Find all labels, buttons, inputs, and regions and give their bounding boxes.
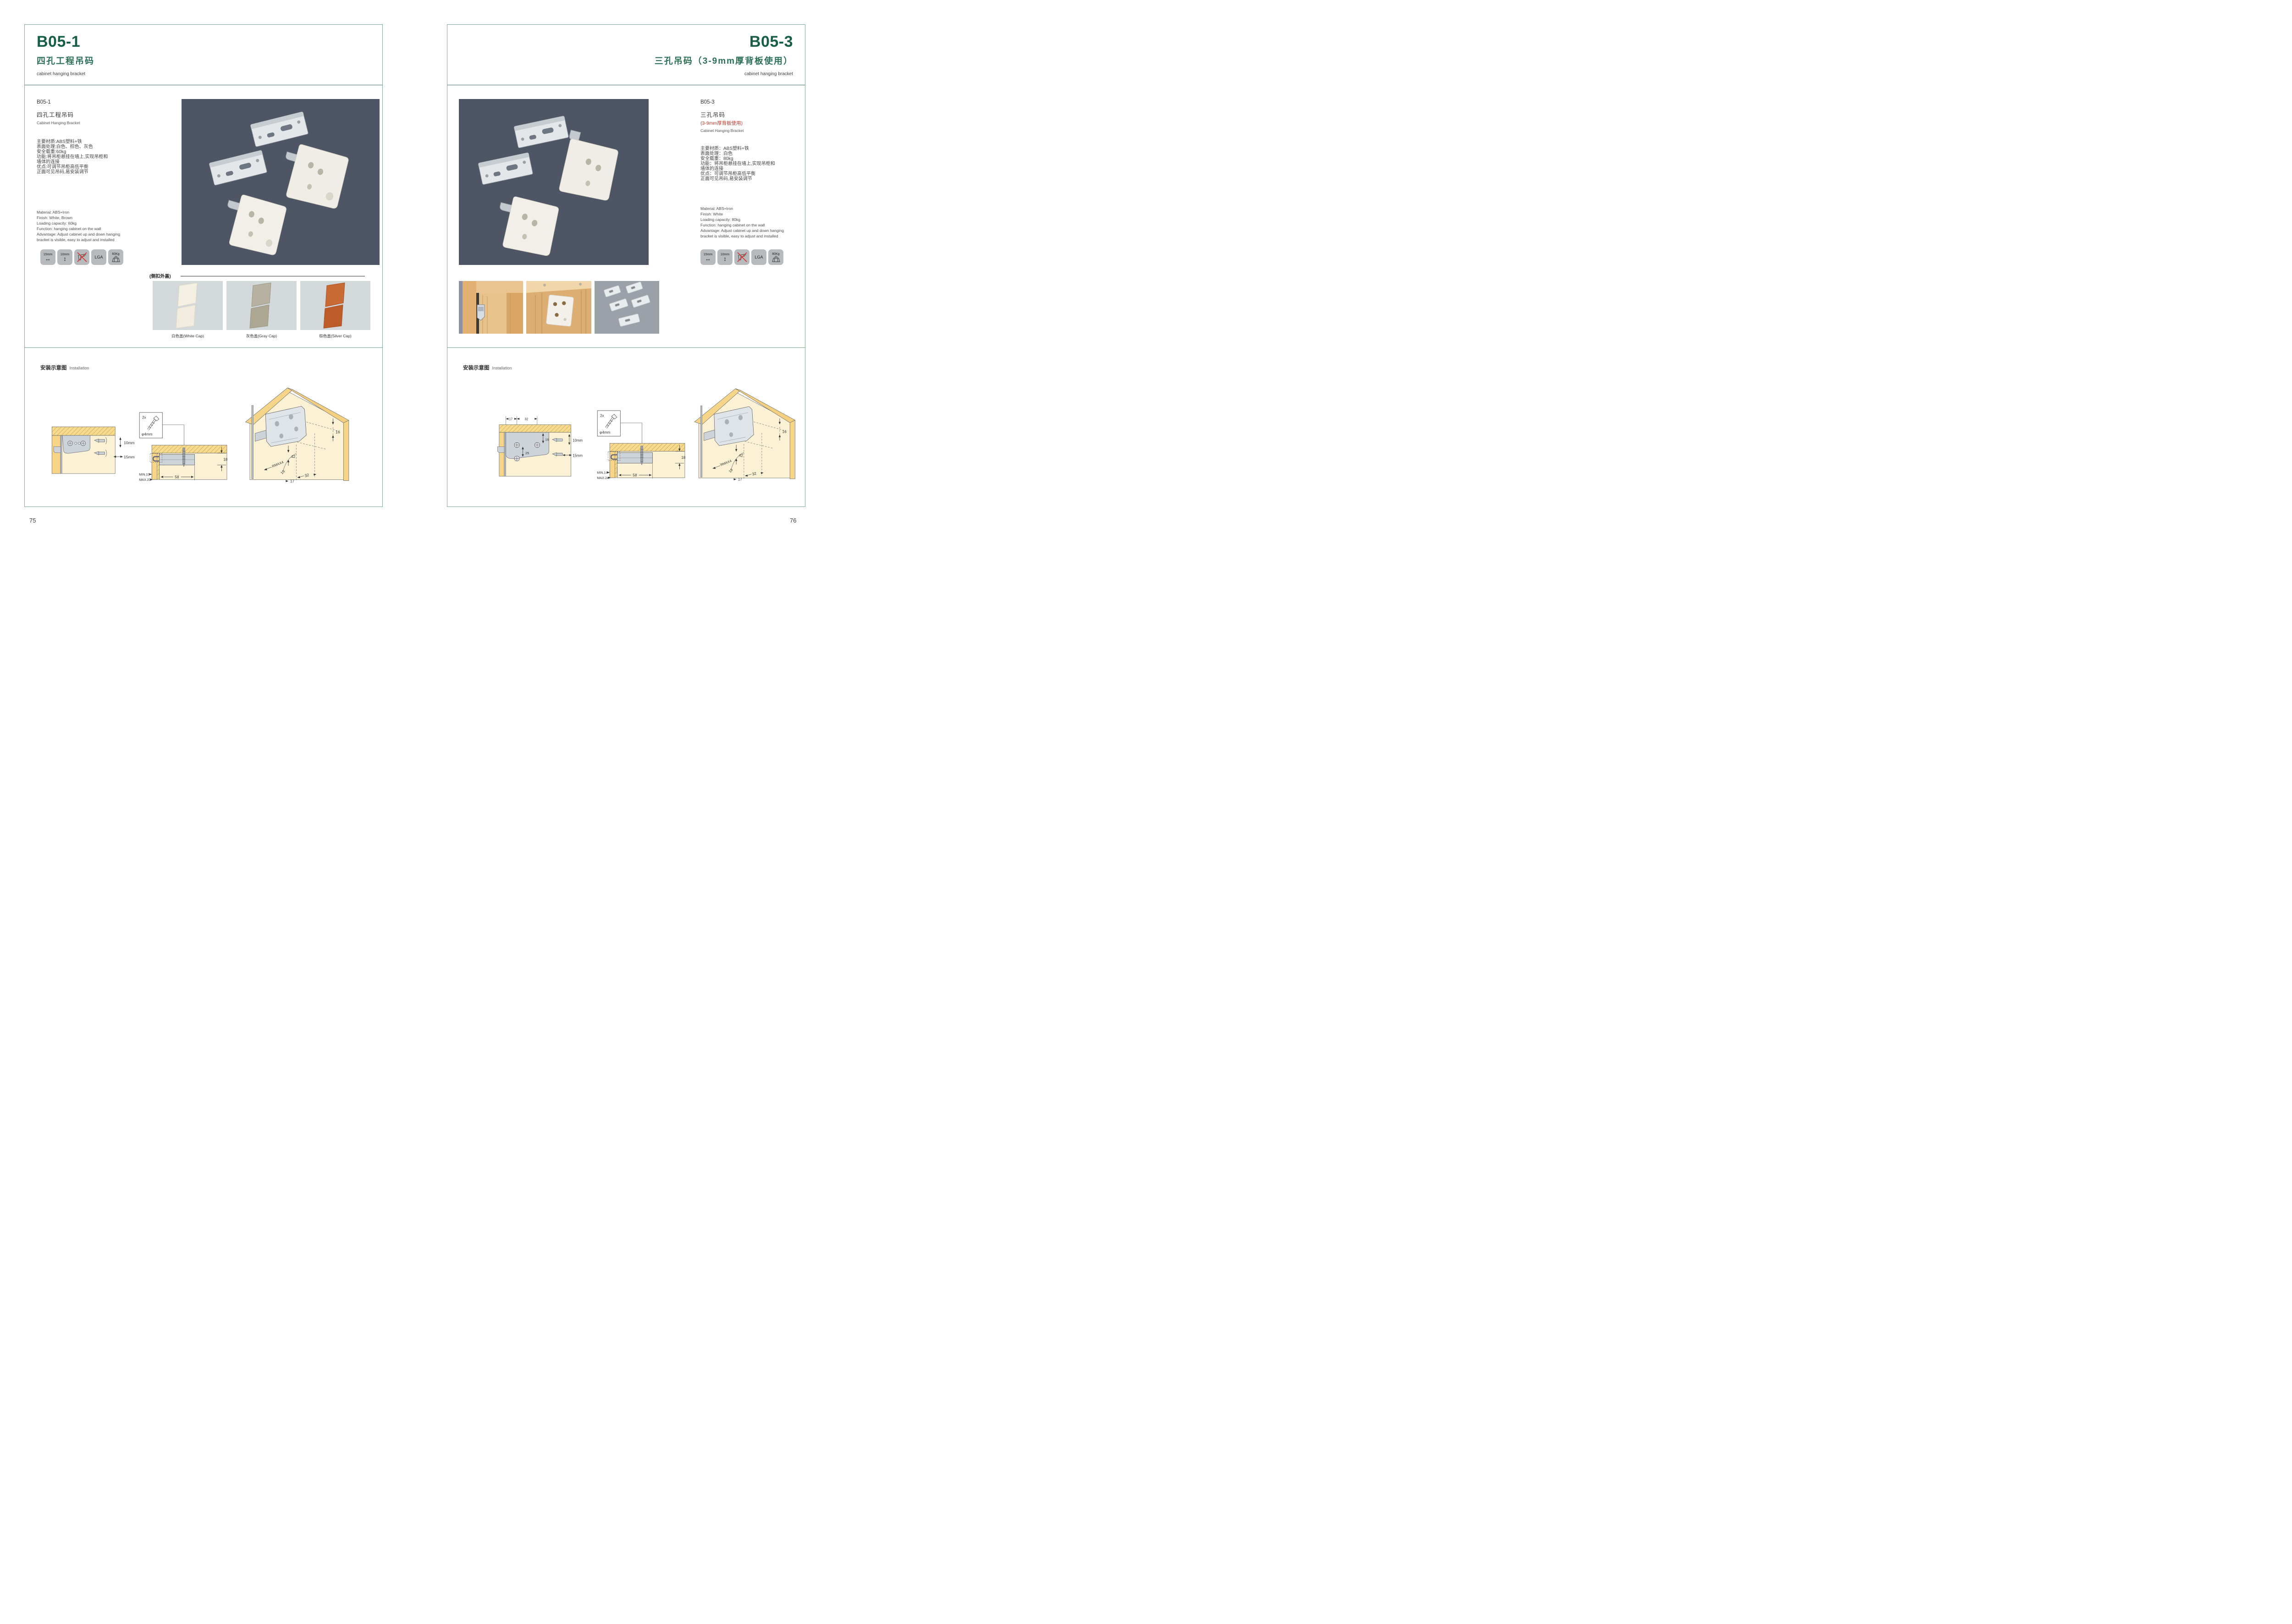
installation-heading-cn: 安装示意图 xyxy=(40,365,67,371)
screw-diameter-label: φ4mm xyxy=(142,432,153,436)
spec-line: 正面可见吊码,易安装调节 xyxy=(37,170,174,175)
spec-line: Finish: White, Brown xyxy=(37,215,174,220)
weight-glyph xyxy=(771,256,781,262)
page-left: B05-1 四孔工程吊码 cabinet hanging bracket B05… xyxy=(24,24,383,507)
spec-line: Material: ABS+Iron xyxy=(700,206,799,211)
installation-heading-en: Installation xyxy=(492,366,512,370)
specs-en: Material: ABS+Iron Finish: White Loading… xyxy=(700,206,799,239)
dim-offset: 17 xyxy=(738,477,742,481)
weight-glyph xyxy=(111,256,121,262)
specs-cn: 主要材质:ABS塑料+铁 表面处理:白色、棕色、灰色 安全载重:60kg 功能:… xyxy=(37,139,174,175)
spec-line: 主要材质：ABS塑料+铁 xyxy=(700,146,799,151)
specs-cn: 主要材质：ABS塑料+铁 表面处理：白色 安全载重：80kg 功能：将吊柜悬挂在… xyxy=(700,146,799,182)
product-name-cn: 三孔吊码 xyxy=(700,110,799,119)
product-name-cn: 四孔工程吊码 xyxy=(37,110,174,119)
spec-line: 安全载重:60kg xyxy=(37,149,174,154)
spec-line: Function: hanging cabinet on the wall xyxy=(700,222,799,228)
photo-bracket-plates xyxy=(595,281,659,334)
spec-line: Advantage: Adjust cabinet up and down ha… xyxy=(37,231,174,237)
cap-label: 白色盖(White Cap) xyxy=(171,333,204,339)
crossed-drill-glyph xyxy=(77,252,88,263)
spec-line: bracket is visible, easy to adjust and i… xyxy=(700,233,799,239)
feature-icons-row: 15mm ↔ 10mm ↕ LGA 80Kg xyxy=(700,249,783,265)
product-name-en: Cabinet Hanging Bracket xyxy=(700,128,799,133)
dim-vertical-adjust: 10mm xyxy=(573,438,583,442)
vertical-adjust-icon: 10mm ↕ xyxy=(57,249,72,265)
section-divider xyxy=(447,347,805,348)
cap-option-gray: 灰色盖(Gray Cap) xyxy=(226,281,297,339)
feature-icons-row: 15mm ↔ 10mm ↕ LGA 60Kg xyxy=(40,249,123,265)
cap-option-brown: 棕色盖(Silver Cap) xyxy=(300,281,370,339)
caps-section-rule xyxy=(181,276,365,276)
page-number-left: 75 xyxy=(29,517,36,524)
installation-diagram-screw: 2x φ4mm 18 MIN.14 MAX.24 58 xyxy=(596,409,688,481)
page-number-right: 76 xyxy=(790,517,796,524)
no-drill-icon xyxy=(734,249,749,265)
spec-line: 功能：将吊柜悬挂在墙上,实现吊柜和 xyxy=(700,161,799,166)
product-name-note: (3-9mm厚背板使用) xyxy=(700,120,799,127)
product-code: B05-1 xyxy=(37,99,174,105)
installation-diagram-perspective: 16 42 RMAX4 16 17 32 xyxy=(240,380,357,486)
product-info-block: B05-1 四孔工程吊码 Cabinet Hanging Bracket 主要材… xyxy=(37,99,174,242)
dim-max: MAX.23 xyxy=(139,478,151,482)
spec-line: Material: ABS+Iron xyxy=(37,209,174,215)
installation-heading-en: Installation xyxy=(70,366,89,370)
specs-en: Material: ABS+Iron Finish: White, Brown … xyxy=(37,209,174,242)
icon-label: 60Kg xyxy=(112,253,119,256)
spec-line: 优点:可调节吊柜高低平衡 xyxy=(37,165,174,170)
cap-image-gray xyxy=(226,281,297,330)
cap-image-white xyxy=(153,281,223,330)
application-photos xyxy=(459,281,659,334)
installation-heading: 安装示意图Installation xyxy=(463,364,512,371)
page-title-code: B05-1 xyxy=(37,33,370,51)
spec-line: 表面处理：白色 xyxy=(700,151,799,156)
product-photo-brackets xyxy=(182,99,380,265)
dim-thickness: 18 xyxy=(681,456,686,460)
cap-image-brown xyxy=(300,281,370,330)
spec-line: Function: hanging cabinet on the wall xyxy=(37,226,174,231)
dim-vertical-adjust: 10mm xyxy=(124,440,135,445)
dim-offset: 17 xyxy=(290,479,295,483)
page-title-cn: 三孔吊码（3-9mm厚背板使用） xyxy=(459,54,793,66)
spec-line: 优点：可调节吊柜高低平衡 xyxy=(700,171,799,176)
load-weight-icon: 80Kg xyxy=(768,249,783,265)
spec-line: Loading capacity: 80kg xyxy=(700,217,799,222)
product-name-en: Cabinet Hanging Bracket xyxy=(37,121,174,125)
spec-line: Advantage: Adjust cabinet up and down ha… xyxy=(700,228,799,233)
installation-diagram-section: 17 32 16 25 10mm 15mm xyxy=(493,413,590,480)
dim-min: MIN.14 xyxy=(597,471,607,475)
spec-line: 墙体的连接 xyxy=(700,166,799,171)
page-right: B05-3 三孔吊码（3-9mm厚背板使用） cabinet hanging b… xyxy=(447,24,805,507)
icon-label: LGA xyxy=(94,255,103,259)
dim-max: MAX.24 xyxy=(597,476,609,480)
product-info-block: B05-3 三孔吊码 (3-9mm厚背板使用) Cabinet Hanging … xyxy=(700,99,799,239)
lga-certified-icon: LGA xyxy=(91,249,106,265)
spec-line: 安全载重：80kg xyxy=(700,156,799,161)
horizontal-adjust-icon: 15mm ↔ xyxy=(700,249,716,265)
dim-min: MIN.10 xyxy=(139,473,149,477)
installation-heading: 安装示意图Installation xyxy=(40,364,89,371)
cap-option-white: 白色盖(White Cap) xyxy=(153,281,223,339)
page-title-en: cabinet hanging bracket xyxy=(37,72,370,77)
spec-line: 表面处理:白色、棕色、灰色 xyxy=(37,144,174,149)
up-down-arrow-icon: ↕ xyxy=(723,256,727,261)
dim-horizontal-adjust: 15mm xyxy=(124,455,135,459)
cap-label: 灰色盖(Gray Cap) xyxy=(246,333,277,339)
screw-diameter-label: φ4mm xyxy=(600,430,611,435)
screw-qty-label: 2x xyxy=(142,415,146,419)
spec-line: 墙体的连接 xyxy=(37,160,174,165)
section-divider xyxy=(25,347,382,348)
dim-thickness: 18 xyxy=(223,457,228,462)
dim-top-offset: 16 xyxy=(545,438,549,442)
lga-certified-icon: LGA xyxy=(751,249,766,265)
product-code: B05-3 xyxy=(700,99,799,105)
spec-line: bracket is visible, easy to adjust and i… xyxy=(37,237,174,242)
dim-pitch: 32 xyxy=(524,417,528,421)
horizontal-adjust-icon: 15mm ↔ xyxy=(40,249,55,265)
product-photo-brackets xyxy=(459,99,649,265)
load-weight-icon: 60Kg xyxy=(108,249,123,265)
spec-line: Loading capacity: 60kg xyxy=(37,220,174,226)
spec-line: 正面可见吊码,易安装调节 xyxy=(700,176,799,182)
dim-hole-spacing: 25 xyxy=(525,451,529,455)
caps-section-label: (侧扣外盖) xyxy=(149,272,171,279)
page-left-header: B05-1 四孔工程吊码 cabinet hanging bracket xyxy=(25,25,382,85)
page-title-cn: 四孔工程吊码 xyxy=(37,54,370,66)
page-title-en: cabinet hanging bracket xyxy=(459,72,793,77)
up-down-arrow-icon: ↕ xyxy=(63,256,66,261)
page-right-header: B05-3 三孔吊码（3-9mm厚背板使用） cabinet hanging b… xyxy=(447,25,805,85)
dim-top-offset: 16 xyxy=(336,429,340,434)
no-drill-icon xyxy=(74,249,89,265)
dim-horizontal-adjust: 15mm xyxy=(573,454,583,458)
page-title-code: B05-3 xyxy=(459,33,793,51)
installation-diagram-section: 10mm 15mm xyxy=(51,420,136,475)
vertical-adjust-icon: 10mm ↕ xyxy=(717,249,733,265)
installation-diagram-screw: 2x φ4mm 18 MIN.10 MAX.23 58 xyxy=(138,411,230,483)
photo-corner-bracket xyxy=(526,281,591,334)
spec-line: Finish: White xyxy=(700,211,799,217)
icon-label: LGA xyxy=(755,255,763,259)
screw-qty-label: 2x xyxy=(600,413,604,418)
icon-label: 80Kg xyxy=(772,253,779,256)
spec-line: 功能:将吊柜悬挂在墙上,实现吊柜和 xyxy=(37,154,174,160)
spec-line: 主要材质:ABS塑料+铁 xyxy=(37,139,174,144)
dim-top-offset: 16 xyxy=(782,429,787,434)
dim-depth: 58 xyxy=(633,473,637,477)
cap-label: 棕色盖(Silver Cap) xyxy=(319,333,351,339)
installation-heading-cn: 安装示意图 xyxy=(463,365,490,371)
left-right-arrow-icon: ↔ xyxy=(45,256,51,261)
dim-depth: 58 xyxy=(175,475,179,479)
dim-offset: 17 xyxy=(509,417,512,421)
installation-diagram-perspective: 16 42 RMAX4 18 17 32 xyxy=(689,381,803,484)
caps-row: 白色盖(White Cap) 灰色盖(Gray Cap) 棕色盖(Silver … xyxy=(153,281,370,339)
crossed-drill-glyph xyxy=(737,252,748,263)
left-right-arrow-icon: ↔ xyxy=(705,256,711,261)
photo-hook-on-rail xyxy=(459,281,523,334)
